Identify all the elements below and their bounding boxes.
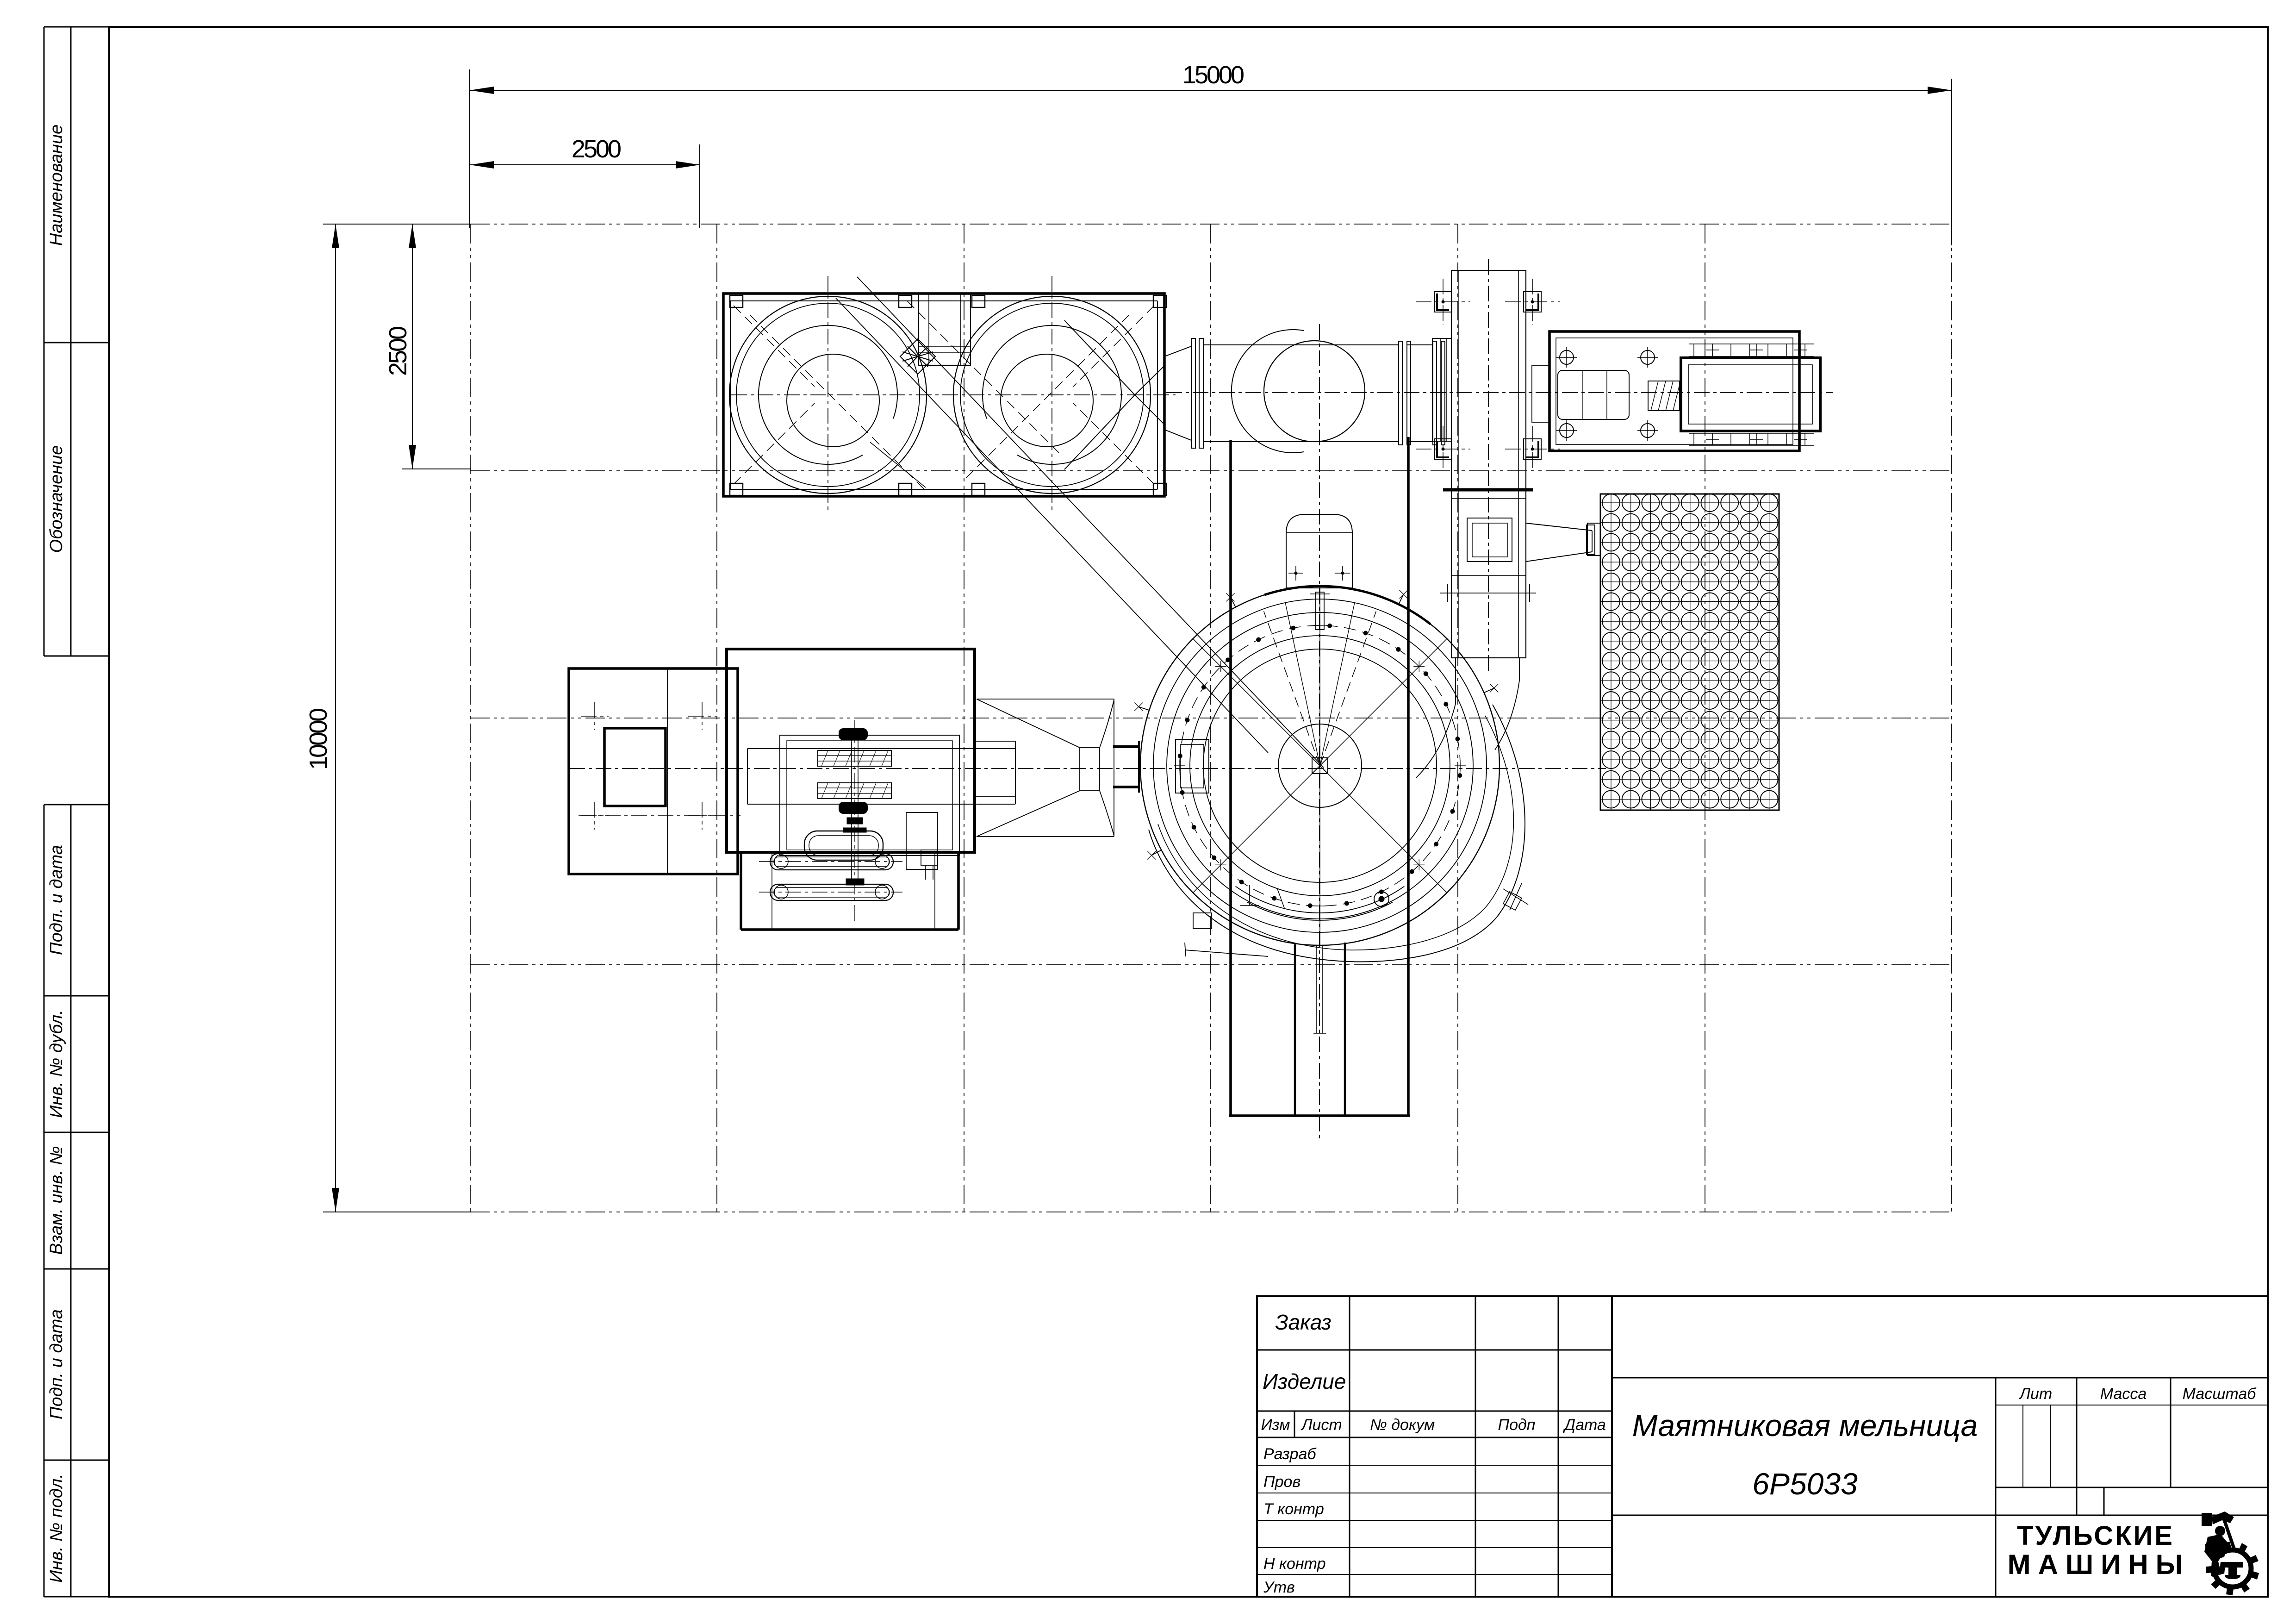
- svg-text:№ докум: № докум: [1370, 1416, 1435, 1434]
- svg-text:Лит: Лит: [2019, 1385, 2053, 1403]
- svg-text:6Р5033: 6Р5033: [1752, 1467, 1858, 1501]
- svg-text:Наименование: Наименование: [47, 125, 66, 246]
- svg-text:Н контр: Н контр: [1263, 1555, 1326, 1573]
- svg-text:Изм: Изм: [1261, 1416, 1290, 1434]
- svg-text:Подп. и дата: Подп. и дата: [47, 1309, 66, 1419]
- svg-text:2500: 2500: [384, 327, 412, 376]
- svg-text:Подп. и дата: Подп. и дата: [47, 845, 66, 955]
- svg-text:Масса: Масса: [2100, 1385, 2147, 1403]
- svg-text:Взам. инв. №: Взам. инв. №: [47, 1146, 66, 1255]
- svg-text:15000: 15000: [1182, 61, 1244, 89]
- svg-text:2500: 2500: [572, 135, 621, 163]
- svg-text:Инв. № дубл.: Инв. № дубл.: [47, 1010, 66, 1118]
- svg-text:Разраб: Разраб: [1263, 1445, 1317, 1463]
- svg-text:Заказ: Заказ: [1275, 1310, 1332, 1334]
- svg-text:Дата: Дата: [1562, 1416, 1606, 1434]
- svg-text:Утв: Утв: [1263, 1579, 1295, 1596]
- svg-text:Маятниковая мельница: Маятниковая мельница: [1632, 1408, 1978, 1443]
- svg-text:Лист: Лист: [1300, 1416, 1342, 1434]
- svg-text:ТУЛЬСКИЕ: ТУЛЬСКИЕ: [2017, 1521, 2174, 1551]
- svg-text:Подп: Подп: [1498, 1416, 1535, 1434]
- svg-text:Пров: Пров: [1263, 1473, 1300, 1491]
- svg-text:Инв. № подл.: Инв. № подл.: [47, 1474, 66, 1583]
- svg-text:Обозначение: Обозначение: [47, 445, 66, 553]
- svg-text:10000: 10000: [305, 709, 332, 770]
- svg-text:Изделие: Изделие: [1263, 1369, 1346, 1393]
- svg-text:Масштаб: Масштаб: [2183, 1385, 2257, 1403]
- svg-text:МАШИНЫ: МАШИНЫ: [2008, 1549, 2190, 1580]
- svg-text:Т контр: Т контр: [1263, 1500, 1324, 1518]
